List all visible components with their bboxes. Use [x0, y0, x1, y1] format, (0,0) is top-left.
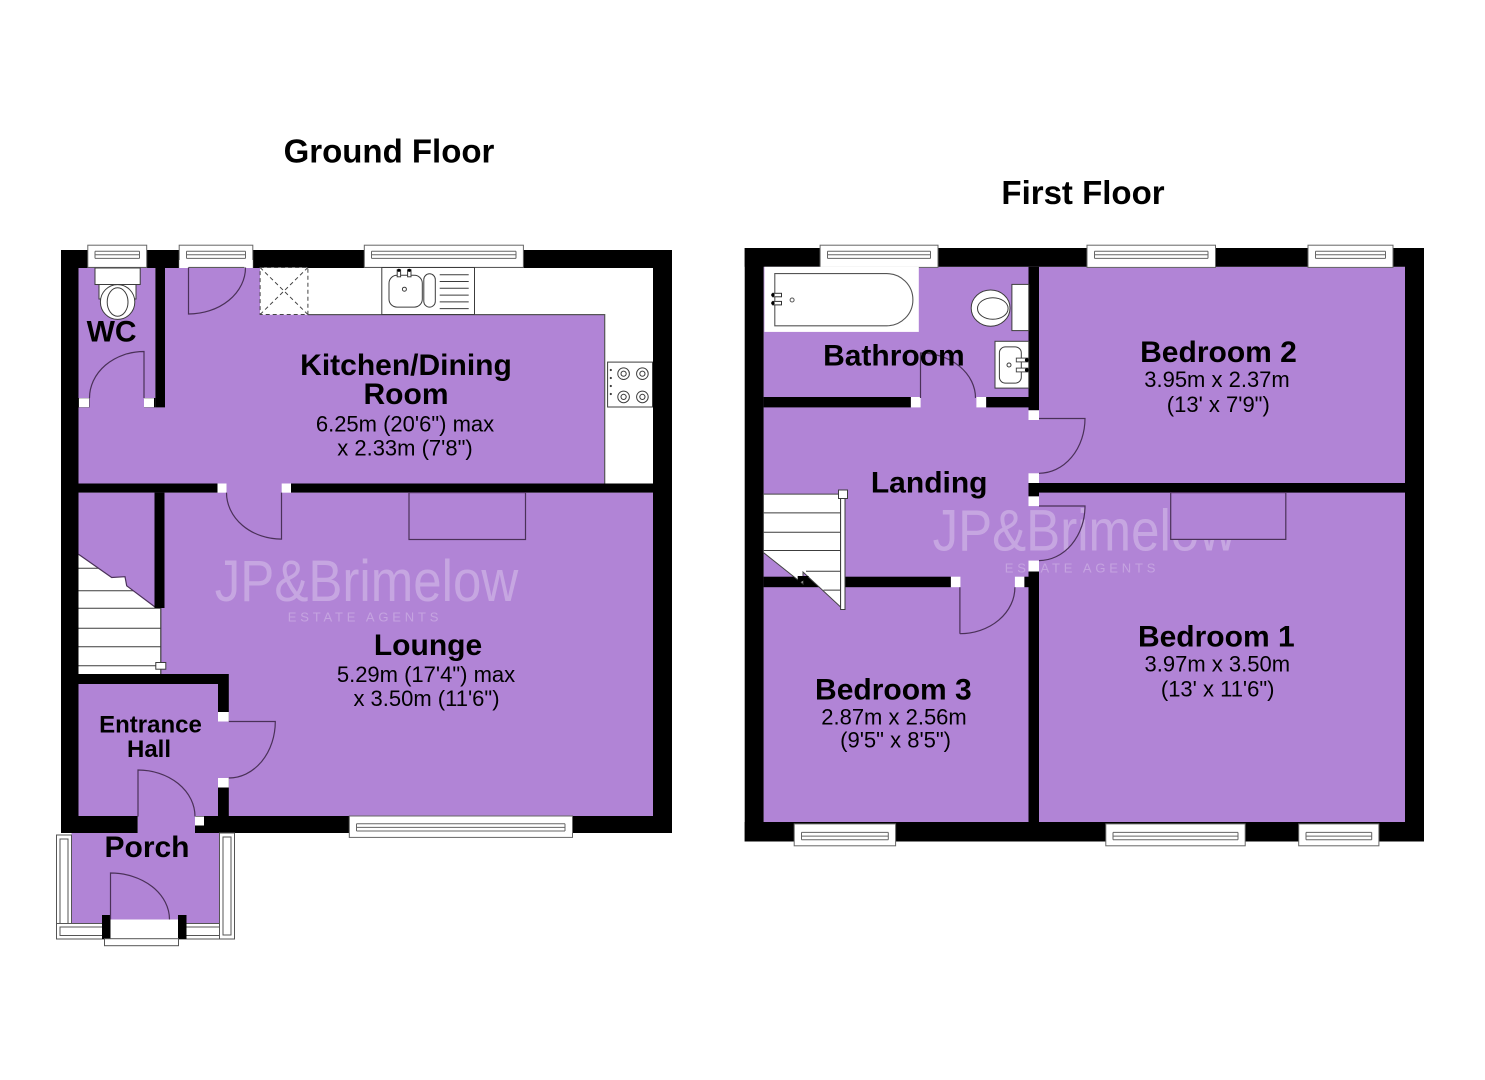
svg-text:Entrance: Entrance [99, 712, 202, 739]
svg-text:x 2.33m (7'8"): x 2.33m (7'8") [337, 435, 473, 460]
svg-text:Bedroom 2: Bedroom 2 [1140, 336, 1297, 369]
svg-text:Bedroom 1: Bedroom 1 [1138, 621, 1295, 654]
svg-text:x 3.50m (11'6"): x 3.50m (11'6") [353, 686, 499, 711]
svg-text:JP&Brimelow: JP&Brimelow [215, 549, 519, 614]
svg-text:ESTATE AGENTS: ESTATE AGENTS [288, 610, 442, 625]
svg-text:2.87m x 2.56m: 2.87m x 2.56m [821, 705, 967, 730]
svg-text:Bathroom: Bathroom [823, 340, 965, 373]
svg-text:Room: Room [364, 378, 449, 411]
svg-text:Lounge: Lounge [374, 629, 482, 662]
svg-text:Ground Floor: Ground Floor [284, 133, 495, 170]
svg-text:(13' x 11'6"): (13' x 11'6") [1161, 677, 1275, 702]
svg-text:WC: WC [87, 316, 137, 349]
svg-text:Bedroom 3: Bedroom 3 [815, 674, 972, 707]
svg-text:Porch: Porch [104, 831, 189, 864]
svg-text:ESTATE AGENTS: ESTATE AGENTS [1005, 561, 1159, 576]
svg-text:Landing: Landing [871, 467, 988, 500]
svg-text:(9'5" x 8'5"): (9'5" x 8'5") [840, 728, 951, 753]
svg-text:6.25m (20'6") max: 6.25m (20'6") max [316, 412, 494, 437]
svg-text:5.29m (17'4") max: 5.29m (17'4") max [337, 662, 515, 687]
svg-text:3.95m x 2.37m: 3.95m x 2.37m [1144, 367, 1290, 392]
svg-text:Hall: Hall [127, 736, 171, 763]
svg-text:First Floor: First Floor [1001, 174, 1164, 211]
svg-text:(13' x 7'9"): (13' x 7'9") [1167, 392, 1270, 417]
svg-text:3.97m x 3.50m: 3.97m x 3.50m [1145, 652, 1291, 677]
